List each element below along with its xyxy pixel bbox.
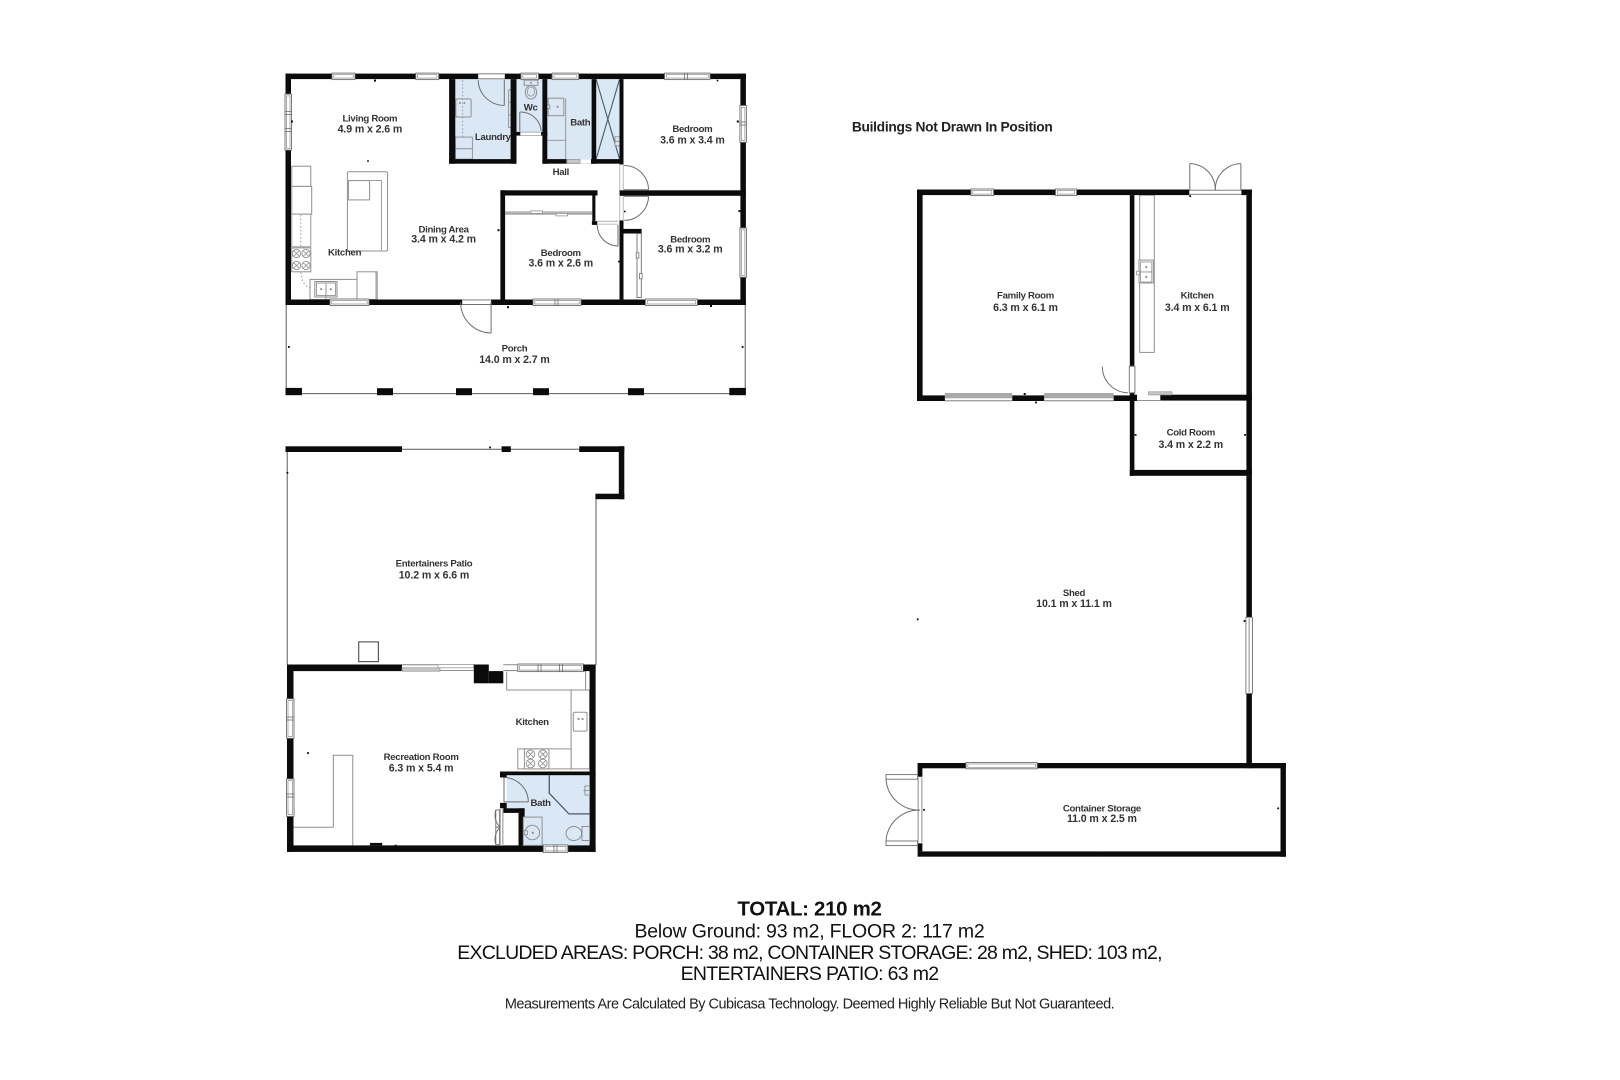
svg-text:Recreation Room: Recreation Room [384,752,459,763]
svg-text:10.2 m x 6.6 m: 10.2 m x 6.6 m [399,569,469,581]
svg-text:4.9 m x 2.6 m: 4.9 m x 2.6 m [338,123,403,135]
svg-text:14.0 m x 2.7 m: 14.0 m x 2.7 m [479,354,549,366]
svg-text:ENTERTAINERS PATIO: 63 m2: ENTERTAINERS PATIO: 63 m2 [681,963,939,985]
svg-text:Cold Room: Cold Room [1167,427,1215,438]
svg-text:11.0 m x 2.5 m: 11.0 m x 2.5 m [1067,813,1137,825]
svg-text:3.6 m x 2.6 m: 3.6 m x 2.6 m [528,258,593,270]
svg-text:Entertainers Patio: Entertainers Patio [396,558,473,569]
svg-text:Buildings Not Drawn In Positio: Buildings Not Drawn In Position [852,120,1053,135]
svg-text:3.6 m x 3.4 m: 3.6 m x 3.4 m [660,135,725,147]
svg-text:Kitchen: Kitchen [328,247,362,258]
svg-text:TOTAL: 210 m2: TOTAL: 210 m2 [737,898,881,921]
svg-text:3.4 m x 2.2 m: 3.4 m x 2.2 m [1158,439,1223,451]
svg-text:Family Room: Family Room [997,290,1054,301]
svg-text:Laundry: Laundry [475,132,512,143]
svg-text:6.3 m x 5.4 m: 6.3 m x 5.4 m [389,762,454,774]
svg-text:10.1 m x 11.1 m: 10.1 m x 11.1 m [1036,598,1112,610]
svg-text:Measurements Are Calculated By: Measurements Are Calculated By Cubicasa … [505,997,1114,1013]
svg-text:Bath: Bath [570,118,591,129]
svg-text:6.3 m x 6.1 m: 6.3 m x 6.1 m [993,302,1058,314]
svg-text:Bedroom: Bedroom [672,124,712,135]
svg-text:Hall: Hall [553,167,569,178]
svg-text:3.4 m x 6.1 m: 3.4 m x 6.1 m [1165,302,1230,314]
svg-text:3.4 m x 4.2 m: 3.4 m x 4.2 m [411,233,476,245]
svg-text:Kitchen: Kitchen [516,717,550,728]
svg-text:Kitchen: Kitchen [1181,290,1215,301]
svg-text:Bath: Bath [531,798,552,809]
svg-text:3.6 m x 3.2 m: 3.6 m x 3.2 m [658,244,723,256]
svg-text:EXCLUDED AREAS: PORCH: 38 m2,: EXCLUDED AREAS: PORCH: 38 m2, CONTAINER … [457,942,1161,964]
svg-text:Wc: Wc [524,103,539,114]
svg-text:Porch: Porch [502,343,528,354]
svg-text:Below Ground: 93 m2, FLOOR 2:: Below Ground: 93 m2, FLOOR 2: 117 m2 [634,920,984,942]
